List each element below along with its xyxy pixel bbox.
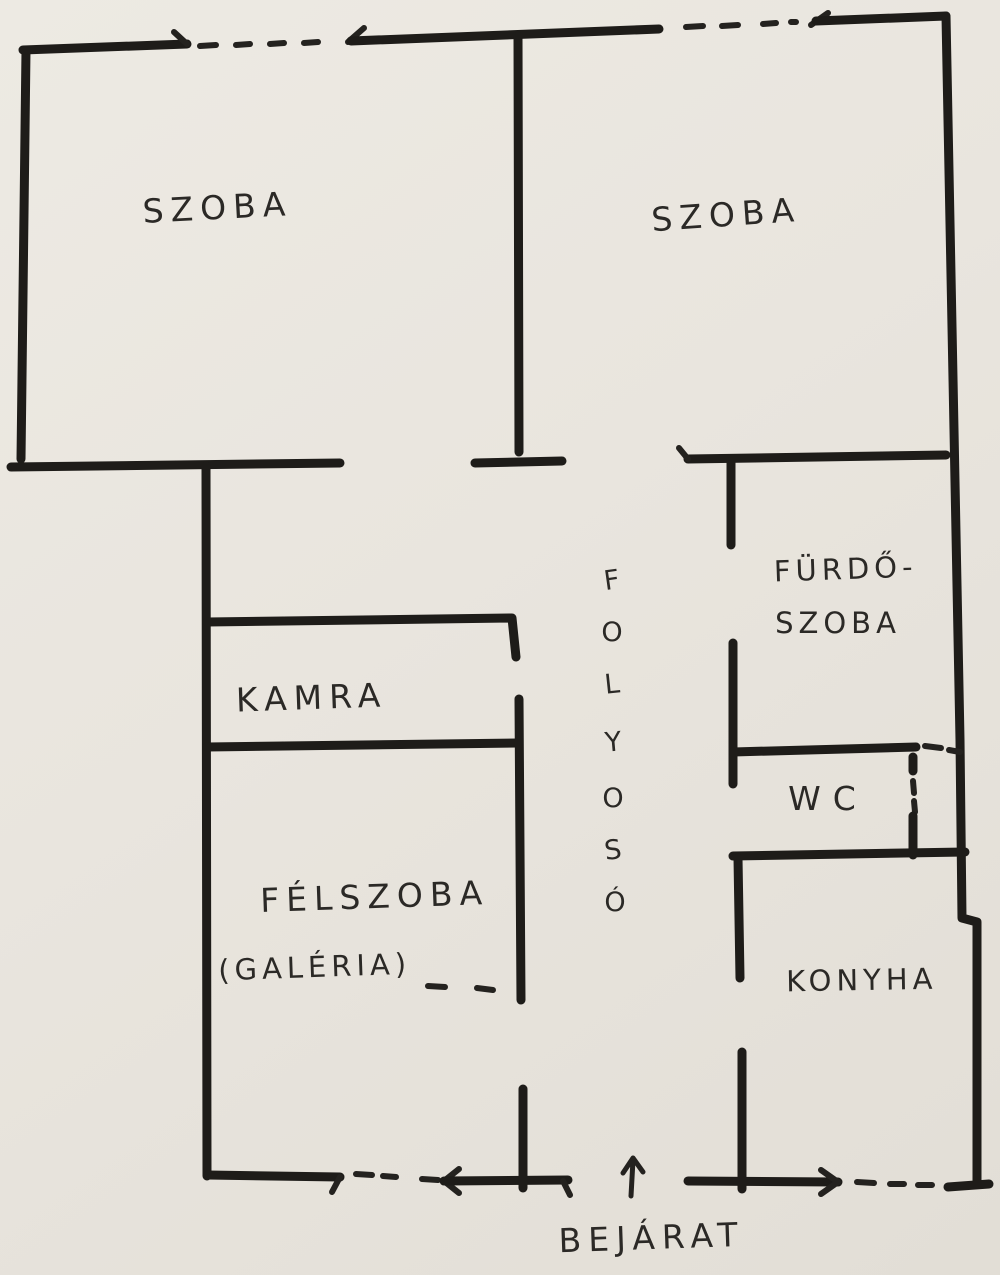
entrance-wall-right — [688, 1181, 838, 1182]
bottom-wall-felszoba — [208, 1175, 340, 1177]
floor-plan-svg: SZOBA SZOBA FÜRDŐ- SZOBA KAMRA WC FÉLSZO… — [0, 0, 1000, 1275]
west-inner-wall — [206, 466, 207, 1176]
corridor-letter: Y — [603, 726, 624, 758]
room-left-south-wall — [11, 463, 340, 467]
bottom-door-dashes-left — [356, 1174, 438, 1180]
room-label-galeria: (GALÉRIA) — [218, 947, 412, 988]
kitchen-west-wall-upper — [738, 858, 740, 978]
hall-top-stub-wall — [475, 461, 562, 463]
room-label-wc: WC — [788, 779, 868, 818]
outer-right-wall — [946, 16, 977, 1184]
kamra-bottom-wall — [207, 743, 518, 747]
outer-left-wall — [21, 50, 26, 459]
room-label-furdoszoba-line2: SZOBA — [775, 606, 901, 640]
bottom-door-dashes-right — [857, 1182, 932, 1185]
entrance-wall-left — [444, 1180, 568, 1181]
wc-door-dashes — [913, 781, 915, 812]
felszoba-door-dashes — [428, 986, 493, 990]
corridor-letter: L — [603, 668, 621, 700]
corridor-west-wall-upper — [519, 699, 521, 1000]
room-right-south-wall — [688, 455, 946, 459]
window-dashes-right — [686, 22, 796, 27]
corridor-label-folyoso: F O L Y O S Ó — [601, 564, 625, 918]
entrance-arrow-icon — [623, 1158, 643, 1196]
kitchen-north-wall — [733, 852, 965, 856]
door-tick-icon — [679, 448, 688, 459]
outer-top-wall-left — [23, 44, 187, 50]
room-label-szoba-right: SZOBA — [650, 190, 802, 239]
room-labels: SZOBA SZOBA FÜRDŐ- SZOBA KAMRA WC FÉLSZO… — [142, 184, 938, 998]
floor-plan-sketch: SZOBA SZOBA FÜRDŐ- SZOBA KAMRA WC FÉLSZO… — [0, 0, 1000, 1275]
outer-top-wall-right — [816, 16, 946, 21]
room-label-furdoszoba-line1: FÜRDŐ- — [773, 550, 918, 589]
outer-top-wall-middle — [351, 29, 659, 41]
bottom-right-corner-wall — [948, 1184, 989, 1187]
corridor-letter: O — [602, 783, 623, 814]
bathroom-door-dashes — [925, 746, 960, 752]
window-dashes-left — [200, 42, 318, 46]
corridor-letter: F — [602, 564, 622, 597]
room-label-kamra: KAMRA — [235, 675, 388, 719]
kamra-top-wall — [207, 618, 516, 657]
room-label-konyha: KONYHA — [786, 962, 938, 999]
entrance-label-bejarat: BEJÁRAT — [558, 1214, 745, 1260]
rooms-divider-wall — [518, 36, 519, 452]
corridor-letter: Ó — [604, 886, 625, 918]
corridor-letter: S — [603, 834, 624, 867]
room-label-felszoba: FÉLSZOBA — [259, 872, 489, 920]
bathroom-south-wall — [733, 747, 916, 752]
room-label-szoba-left: SZOBA — [142, 184, 294, 231]
corridor-letter: O — [601, 617, 622, 648]
